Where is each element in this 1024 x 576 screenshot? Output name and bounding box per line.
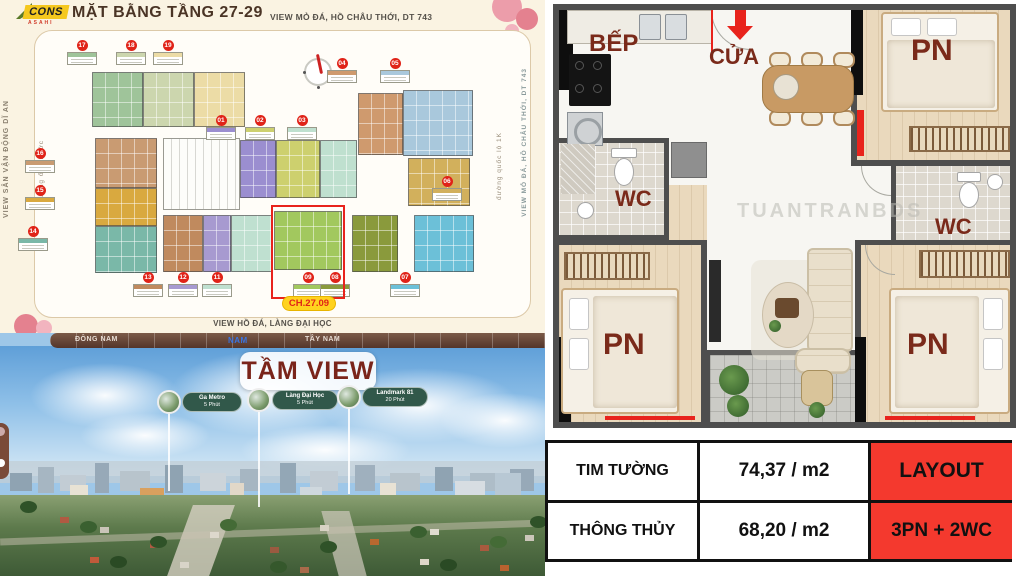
unit-block-03 — [320, 140, 357, 198]
pin-stick — [348, 408, 350, 494]
door-label: CỬA — [709, 44, 759, 70]
view-title: TẦM VIEW — [240, 352, 376, 390]
label-view-east: VIEW MỎ ĐÁ, HỒ CHÂU THỚI, DT 743 — [521, 68, 528, 217]
plant — [719, 365, 749, 395]
wc-label: WC — [615, 186, 652, 212]
wardrobe — [564, 252, 650, 280]
unit-badge: 07 — [390, 272, 420, 297]
red-underline — [885, 416, 975, 420]
shower — [561, 144, 595, 194]
pin-label-metro: Ga Metro 5 Phút — [182, 392, 242, 412]
wall — [704, 350, 710, 422]
cloud — [80, 413, 210, 458]
red-marker — [857, 110, 864, 156]
entry-arrow-head — [727, 26, 753, 40]
apartment-floorplan: BẾP CỬA — [553, 4, 1016, 428]
unit-badge: 17 — [67, 40, 97, 65]
building — [38, 467, 54, 493]
direction-southwest: TÂY NAM — [305, 336, 340, 343]
bedroom-label: PN — [603, 328, 645, 362]
kitchen-sink — [639, 14, 661, 40]
unit-badge: 06 — [432, 176, 462, 201]
spec-value: 68,20 / m2 — [700, 503, 868, 560]
highlighted-unit-label: CH.27.09 — [282, 296, 336, 311]
plant — [769, 320, 781, 332]
unit-block-12 — [203, 215, 231, 272]
pin-stick — [168, 413, 170, 491]
compass-direction-bar: ĐÔNG NAM NAM TÂY NAM — [50, 333, 545, 348]
logo-subtext: ASAHI — [28, 20, 54, 26]
entry-arrow — [735, 10, 746, 26]
pin-photo-university — [247, 388, 271, 412]
plant — [809, 402, 825, 418]
building — [200, 473, 226, 491]
label-view-south: VIEW HỒ ĐÁ, LÀNG ĐẠI HỌC — [0, 319, 545, 328]
unit-block-14 — [95, 226, 157, 273]
unit-badge: 14 — [18, 226, 48, 251]
unit-badge: 05 — [380, 58, 410, 83]
unit-block-15 — [95, 188, 157, 226]
bedroom-label: PN — [911, 34, 953, 68]
wall-column — [855, 337, 866, 422]
spec-tag-layout: LAYOUT — [871, 443, 1012, 500]
unit-badge: 13 — [133, 272, 163, 297]
bcons-logo: CONS ASAHI — [16, 3, 70, 29]
unit-block-02 — [276, 140, 320, 198]
unit-block-16 — [95, 138, 157, 188]
direction-southeast: ĐÔNG NAM — [75, 336, 118, 343]
logo-text: CONS — [23, 5, 70, 19]
pin-photo-landmark81 — [337, 385, 361, 409]
spec-label: TIM TƯỜNG — [548, 443, 697, 500]
wall — [559, 240, 707, 245]
building — [355, 465, 375, 491]
toilet — [614, 158, 634, 186]
spec-value: 74,37 / m2 — [700, 443, 868, 500]
unit-badge: 12 — [168, 272, 198, 297]
unit-block-17 — [92, 72, 143, 127]
sink — [577, 202, 594, 219]
unit-block-07 — [414, 215, 474, 272]
label-view-west: VIEW SÂN VẬN ĐỘNG DĨ AN — [3, 100, 10, 218]
teapot — [773, 74, 799, 100]
watermark: TUANTRANBDS — [737, 200, 923, 223]
washing-machine — [567, 112, 603, 146]
partial-pin — [0, 423, 9, 479]
balcony-chair — [801, 370, 833, 406]
unit-badge: 16 — [25, 148, 55, 173]
unit-badge: 02 — [245, 115, 275, 140]
cabinet — [671, 142, 707, 178]
toilet — [611, 148, 637, 158]
wardrobe — [909, 126, 1010, 152]
unit-block-01 — [240, 140, 276, 198]
building — [95, 463, 109, 493]
red-underline — [605, 416, 695, 420]
plant — [727, 395, 749, 417]
kitchen-label: BẾP — [589, 30, 638, 58]
pin-label-landmark81: Landmark 81 20 Phút — [362, 387, 428, 407]
spec-table: TIM TƯỜNG 74,37 / m2 LAYOUT THÔNG THỦY 6… — [545, 440, 1012, 562]
building — [280, 463, 296, 493]
door-arc — [861, 166, 891, 196]
unit-badge: 15 — [25, 185, 55, 210]
label-highway-road: đường quốc lộ 1K — [496, 132, 503, 200]
stove — [569, 54, 611, 106]
unit-badge: 01 — [206, 115, 236, 140]
rooftops — [60, 517, 69, 523]
unit-block-13 — [163, 215, 203, 272]
toilet — [957, 172, 981, 182]
spec-label: THÔNG THỦY — [548, 503, 697, 560]
building — [435, 467, 453, 491]
highlight-rectangle — [271, 205, 345, 299]
panorama-photo: ĐÔNG NAM NAM TÂY NAM TẦM VIEW Ga Metro 5… — [0, 333, 545, 576]
pin-stick — [258, 411, 260, 507]
elevator-core — [163, 138, 240, 210]
flyer-canvas: CONS ASAHI MẶT BẰNG TẦNG 27-29 VIEW MỎ Đ… — [0, 0, 1024, 576]
page-title: MẶT BẰNG TẦNG 27-29 — [72, 4, 263, 22]
tv-console — [709, 260, 721, 342]
trees — [20, 501, 37, 513]
page-subtitle: VIEW MỎ ĐÁ, HỒ CHÂU THỚI, DT 743 — [270, 12, 432, 22]
unit-block-05 — [403, 90, 473, 156]
unit-badge: 04 — [327, 58, 357, 83]
spec-tag-rooms: 3PN + 2WC — [871, 503, 1012, 560]
wall — [664, 138, 669, 240]
sink — [987, 174, 1003, 190]
wardrobe — [919, 250, 1010, 278]
unit-block-18 — [143, 72, 194, 127]
apartment-panel: BẾP CỬA — [545, 0, 1024, 576]
sakura-decoration — [516, 8, 538, 30]
toilet — [959, 182, 979, 208]
unit-badge: 18 — [116, 40, 146, 65]
pin-label-university: Làng Đại Học 5 Phút — [272, 390, 338, 410]
direction-south-active: NAM — [228, 336, 248, 345]
hall-floor — [667, 185, 707, 240]
unit-badge: 11 — [202, 272, 232, 297]
unit-badge: 19 — [153, 40, 183, 65]
pin-photo-metro — [157, 390, 181, 414]
bedroom-label: PN — [907, 328, 949, 362]
wc-label: WC — [935, 214, 972, 240]
site-plan-panel: CONS ASAHI MẶT BẰNG TẦNG 27-29 VIEW MỎ Đ… — [0, 0, 545, 333]
building — [10, 473, 32, 491]
sofa — [807, 248, 853, 352]
unit-block-04 — [358, 93, 403, 155]
kitchen-sink — [665, 14, 687, 40]
tray — [775, 298, 799, 318]
unit-block-11 — [231, 215, 273, 272]
unit-block-08 — [352, 215, 398, 272]
unit-badge: 03 — [287, 115, 317, 140]
